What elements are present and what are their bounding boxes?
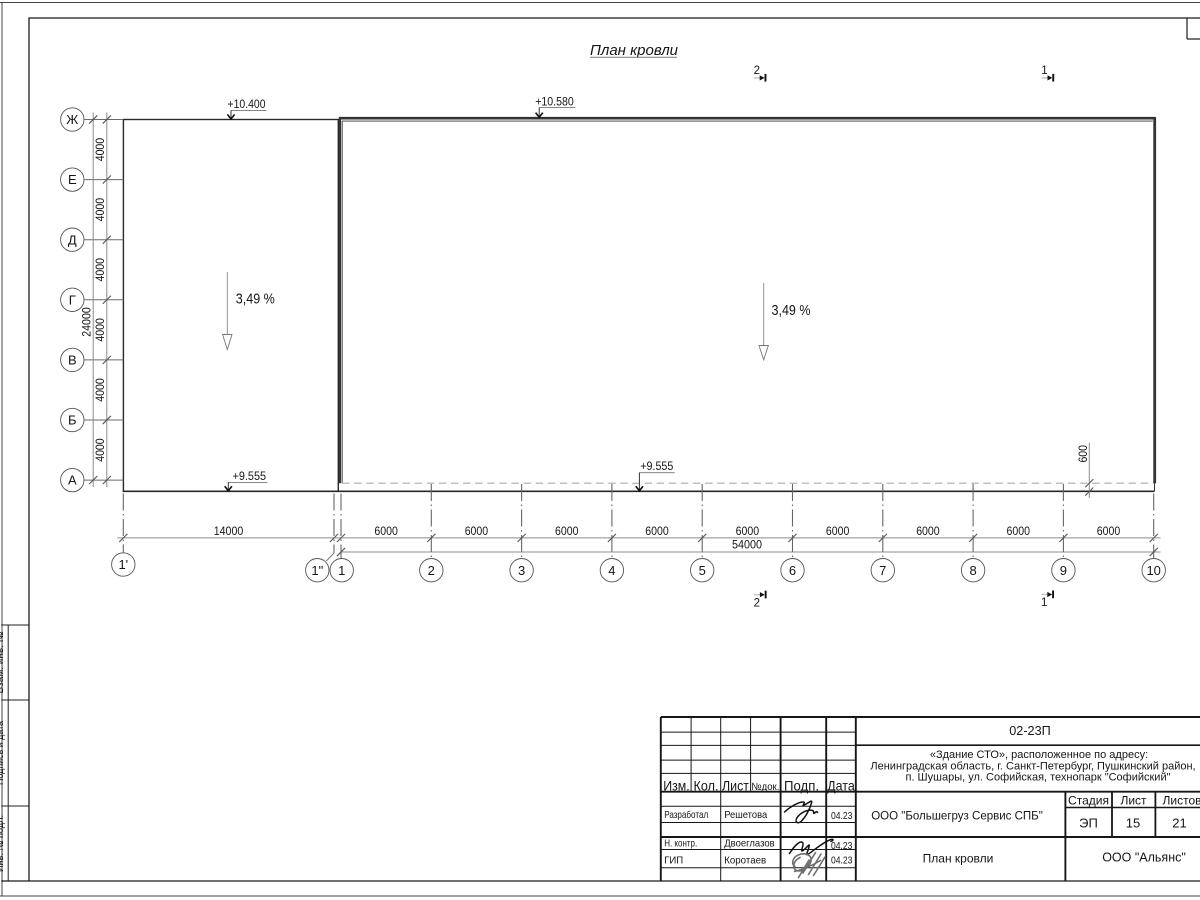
svg-text:Н. контр.: Н. контр. xyxy=(664,837,697,849)
svg-text:2: 2 xyxy=(428,563,435,578)
svg-text:Взам. инв. №: Взам. инв. № xyxy=(0,631,5,693)
svg-text:6000: 6000 xyxy=(374,526,398,538)
svg-text:Б: Б xyxy=(68,413,77,428)
svg-text:3,49 %: 3,49 % xyxy=(236,291,275,308)
svg-text:9: 9 xyxy=(1060,563,1067,578)
svg-text:04.23: 04.23 xyxy=(831,840,853,852)
svg-text:Лист: Лист xyxy=(1120,794,1147,808)
svg-text:8: 8 xyxy=(969,563,976,578)
svg-text:6000: 6000 xyxy=(736,526,760,538)
svg-text:Кол.: Кол. xyxy=(694,778,719,794)
svg-text:ЭП: ЭП xyxy=(1079,816,1098,831)
svg-text:План кровли: План кровли xyxy=(923,851,994,865)
svg-text:+10.580: +10.580 xyxy=(535,96,574,108)
svg-text:6000: 6000 xyxy=(465,526,489,538)
svg-text:Решетова: Решетова xyxy=(724,809,767,821)
svg-text:4000: 4000 xyxy=(95,378,107,402)
svg-text:3: 3 xyxy=(518,563,525,578)
svg-text:+9.555: +9.555 xyxy=(640,461,673,473)
svg-text:В: В xyxy=(68,353,77,368)
svg-text:ООО "Большегруз Сервис СПБ": ООО "Большегруз Сервис СПБ" xyxy=(871,811,1043,823)
svg-text:04.23: 04.23 xyxy=(831,855,853,867)
svg-text:Подпись и дата: Подпись и дата xyxy=(0,721,5,785)
svg-text:Коротаев: Коротаев xyxy=(724,855,766,867)
svg-text:6000: 6000 xyxy=(645,526,669,538)
svg-text:1: 1 xyxy=(338,563,345,578)
svg-text:+10.400: +10.400 xyxy=(228,99,266,111)
svg-text:1': 1' xyxy=(118,557,128,572)
svg-text:4000: 4000 xyxy=(95,258,107,282)
svg-text:04.23: 04.23 xyxy=(831,810,853,822)
svg-text:54000: 54000 xyxy=(732,540,762,552)
svg-text:24000: 24000 xyxy=(81,307,93,337)
svg-text:2: 2 xyxy=(754,65,760,77)
svg-text:3,49 %: 3,49 % xyxy=(772,302,811,319)
svg-text:План кровли: План кровли xyxy=(590,42,679,59)
svg-text:1": 1" xyxy=(311,563,323,578)
svg-text:14000: 14000 xyxy=(214,526,244,538)
svg-text:6000: 6000 xyxy=(826,526,850,538)
svg-text:6000: 6000 xyxy=(916,526,940,538)
svg-text:Г: Г xyxy=(69,292,76,307)
svg-text:Е: Е xyxy=(68,172,77,187)
svg-text:ООО "Альянс": ООО "Альянс" xyxy=(1102,851,1186,865)
svg-text:Двоеглазов: Двоеглазов xyxy=(724,837,775,849)
svg-text:+9.555: +9.555 xyxy=(233,471,267,483)
svg-text:15: 15 xyxy=(1126,816,1140,831)
svg-text:7: 7 xyxy=(879,563,886,578)
svg-text:Лист: Лист xyxy=(722,778,750,794)
svg-text:Ж: Ж xyxy=(66,112,78,127)
svg-text:4000: 4000 xyxy=(95,198,107,222)
svg-text:4000: 4000 xyxy=(95,318,107,342)
svg-text:1: 1 xyxy=(1041,597,1047,609)
svg-text:1: 1 xyxy=(1041,65,1047,77)
svg-text:А: А xyxy=(68,473,77,488)
svg-text:Изм.: Изм. xyxy=(663,778,690,794)
svg-text:Разработал: Разработал xyxy=(664,809,708,821)
svg-text:Подп.: Подп. xyxy=(784,778,819,794)
svg-text:6: 6 xyxy=(789,563,796,578)
svg-text:п. Шушары, ул. Софийская, техн: п. Шушары, ул. Софийская, технопарк "Соф… xyxy=(905,772,1170,784)
svg-text:«Здание СТО», расположенное по: «Здание СТО», расположенное по адресу: xyxy=(930,749,1148,761)
svg-text:ГИП: ГИП xyxy=(664,855,683,867)
svg-text:№док.: №док. xyxy=(751,781,779,793)
svg-text:6000: 6000 xyxy=(1097,526,1121,538)
svg-text:6000: 6000 xyxy=(555,526,579,538)
svg-text:Стадия: Стадия xyxy=(1068,794,1109,808)
svg-text:600: 600 xyxy=(1078,445,1090,463)
svg-text:Инв. № подл.: Инв. № подл. xyxy=(0,815,5,872)
svg-text:4000: 4000 xyxy=(95,138,107,162)
svg-text:6000: 6000 xyxy=(1007,526,1031,538)
svg-text:02-23П: 02-23П xyxy=(1009,724,1051,738)
svg-text:21: 21 xyxy=(1172,816,1186,831)
svg-text:4: 4 xyxy=(608,563,615,578)
svg-text:5: 5 xyxy=(699,563,706,578)
svg-text:Д: Д xyxy=(68,232,77,247)
svg-text:10: 10 xyxy=(1146,563,1160,578)
svg-text:Дата: Дата xyxy=(827,778,855,794)
svg-text:2: 2 xyxy=(754,597,760,609)
svg-text:4000: 4000 xyxy=(95,438,107,462)
svg-text:Листов: Листов xyxy=(1163,794,1200,808)
